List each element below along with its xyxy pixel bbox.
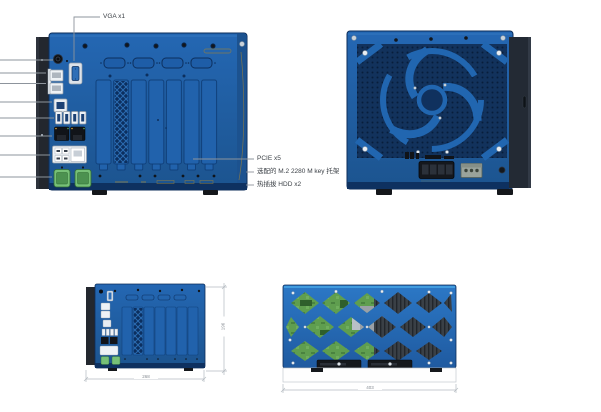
slots-small (122, 307, 198, 355)
corner-screw (352, 36, 357, 41)
rear-panel-view (0, 17, 254, 195)
chassis-diagram-art (0, 0, 601, 412)
bottom-dimension-view (281, 285, 458, 393)
corner-screw (501, 36, 506, 41)
hdd-callout-label: 热插拔 HDD x2 (257, 181, 301, 189)
chassis-foot (203, 190, 218, 195)
power-connector (419, 162, 454, 182)
front-height-dimension: 196 (221, 317, 226, 337)
slot-vent-cover (115, 81, 128, 163)
io-port (54, 99, 67, 112)
vga-port (69, 63, 82, 84)
pcie-callout-label: PCIE x5 (257, 155, 281, 163)
vga-callout-label: VGA x1 (103, 13, 125, 21)
chassis-foot (430, 368, 442, 372)
grounding-screw (499, 167, 505, 173)
m2-bracket-callout-label: 选配的 M.2 2280 M key 托架 (257, 168, 339, 176)
terminal-block (461, 164, 482, 178)
front-dimension-view (84, 283, 227, 382)
front-width-dimension: 268 (134, 374, 158, 379)
fan-side-view (347, 31, 531, 195)
usb-lan-block (53, 146, 87, 163)
corner-screw (240, 42, 245, 47)
diagram-canvas: VGA x1 PCIE x5 选配的 M.2 2280 M key 托架 热插拔… (0, 0, 601, 412)
chassis-foot (311, 368, 323, 372)
chassis-foot (92, 190, 107, 195)
chassis-foot (376, 189, 392, 195)
chassis-foot (497, 189, 513, 195)
chassis-body (49, 33, 247, 190)
mounting-flange (86, 287, 95, 365)
expansion-slots (96, 80, 217, 170)
side-panel-edge (509, 37, 531, 188)
bottom-width-dimension: 403 (358, 385, 382, 390)
